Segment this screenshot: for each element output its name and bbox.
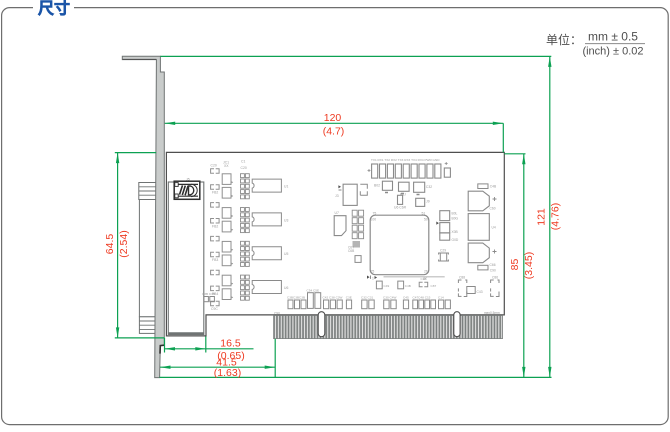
svg-text:100: 100 — [371, 218, 377, 222]
svg-text:C90: C90 — [490, 269, 496, 273]
svg-text:B6J: B6J — [400, 193, 406, 197]
svg-text:C60: C60 — [490, 207, 496, 211]
svg-text:C1: C1 — [241, 160, 245, 164]
svg-text:51: 51 — [422, 211, 426, 215]
svg-text:(3.45): (3.45) — [523, 252, 535, 279]
svg-text:C45: C45 — [403, 296, 409, 300]
svg-text:J3: J3 — [335, 194, 339, 198]
svg-text:B02: B02 — [374, 184, 380, 188]
svg-text:U6 C6R: U6 C6R — [394, 206, 407, 210]
svg-text:mm ± 0.5: mm ± 0.5 — [588, 30, 638, 44]
svg-text:B0L: B0L — [452, 212, 458, 216]
svg-text:C90: C90 — [274, 312, 280, 316]
svg-text:X0B: X0B — [452, 230, 459, 234]
svg-text:121: 121 — [535, 208, 547, 226]
svg-text:C32: C32 — [426, 185, 432, 189]
svg-text:U3: U3 — [284, 218, 288, 222]
svg-text:C49: C49 — [384, 284, 390, 288]
svg-text:尺寸: 尺寸 — [38, 0, 70, 17]
svg-text:(inch) ± 0.02: (inch) ± 0.02 — [582, 46, 643, 58]
svg-text:C14: C14 — [438, 296, 444, 300]
svg-text:C9C: C9C — [211, 307, 218, 311]
svg-text:1: 1 — [372, 276, 374, 280]
svg-text:120: 120 — [324, 112, 342, 124]
svg-text:C3E: C3E — [346, 296, 352, 300]
svg-text:C4B: C4B — [490, 185, 497, 189]
svg-text:C20: C20 — [241, 166, 247, 170]
svg-text:C3B C3B: C3B C3B — [202, 292, 215, 296]
svg-text:(4.7): (4.7) — [323, 125, 345, 137]
svg-text:C32 C31: C32 C31 — [361, 296, 373, 300]
svg-text:U6: U6 — [284, 286, 288, 290]
svg-text:mex0.5mm: mex0.5mm — [484, 311, 500, 315]
svg-text:C20: C20 — [211, 164, 217, 168]
svg-text:B0G: B0G — [452, 217, 459, 221]
svg-text:U7: U7 — [335, 211, 339, 215]
svg-text:(1.63): (1.63) — [214, 367, 241, 379]
svg-text:C54 C5E: C54 C5E — [307, 289, 320, 293]
svg-text:C88: C88 — [459, 276, 465, 280]
svg-text:C29: C29 — [440, 249, 446, 253]
svg-text:U1: U1 — [284, 185, 288, 189]
svg-text:C86: C86 — [492, 276, 498, 280]
svg-text:(4.76): (4.76) — [549, 203, 561, 230]
svg-text:75: 75 — [373, 211, 377, 215]
svg-text:C4B: C4B — [405, 284, 411, 288]
svg-text:C66: C66 — [490, 263, 496, 267]
svg-text:FB2: FB2 — [212, 191, 218, 195]
svg-text:26: 26 — [424, 270, 428, 274]
svg-text:(2.54): (2.54) — [118, 230, 130, 257]
svg-text:85: 85 — [509, 259, 521, 271]
svg-text:C87: C87 — [431, 284, 437, 288]
svg-text:G0D: G0D — [452, 238, 459, 242]
svg-text:C43: C43 — [477, 290, 483, 294]
svg-text:FB3: FB3 — [212, 258, 218, 262]
svg-text:50: 50 — [424, 218, 428, 222]
svg-text:C3B: C3B — [421, 277, 427, 281]
svg-text:U4: U4 — [492, 226, 496, 230]
svg-text:C42 C38 C3W: C42 C38 C3W — [323, 296, 343, 300]
svg-text:16.5: 16.5 — [220, 337, 241, 349]
svg-text:25: 25 — [371, 270, 375, 274]
svg-text:64.5: 64.5 — [104, 234, 116, 255]
svg-text:C47C48 C15: C47C48 C15 — [413, 296, 431, 300]
svg-text:U5: U5 — [284, 252, 288, 256]
svg-text:C3BC3BC3B: C3BC3BC3B — [287, 296, 305, 300]
svg-text:J9: J9 — [426, 200, 430, 204]
svg-text:TX1 RX1 TX2 RX2 TX3 RX3 TX4 RX: TX1 RX1 TX2 RX2 TX3 RX3 TX4 RX4 PWR GND — [371, 158, 440, 162]
svg-text:FB2: FB2 — [212, 224, 218, 228]
svg-text:C30 C4W: C30 C4W — [383, 296, 396, 300]
svg-text:单位：: 单位： — [546, 32, 582, 47]
svg-text:XX: XX — [224, 164, 229, 168]
svg-text:C6B: C6B — [348, 249, 354, 253]
